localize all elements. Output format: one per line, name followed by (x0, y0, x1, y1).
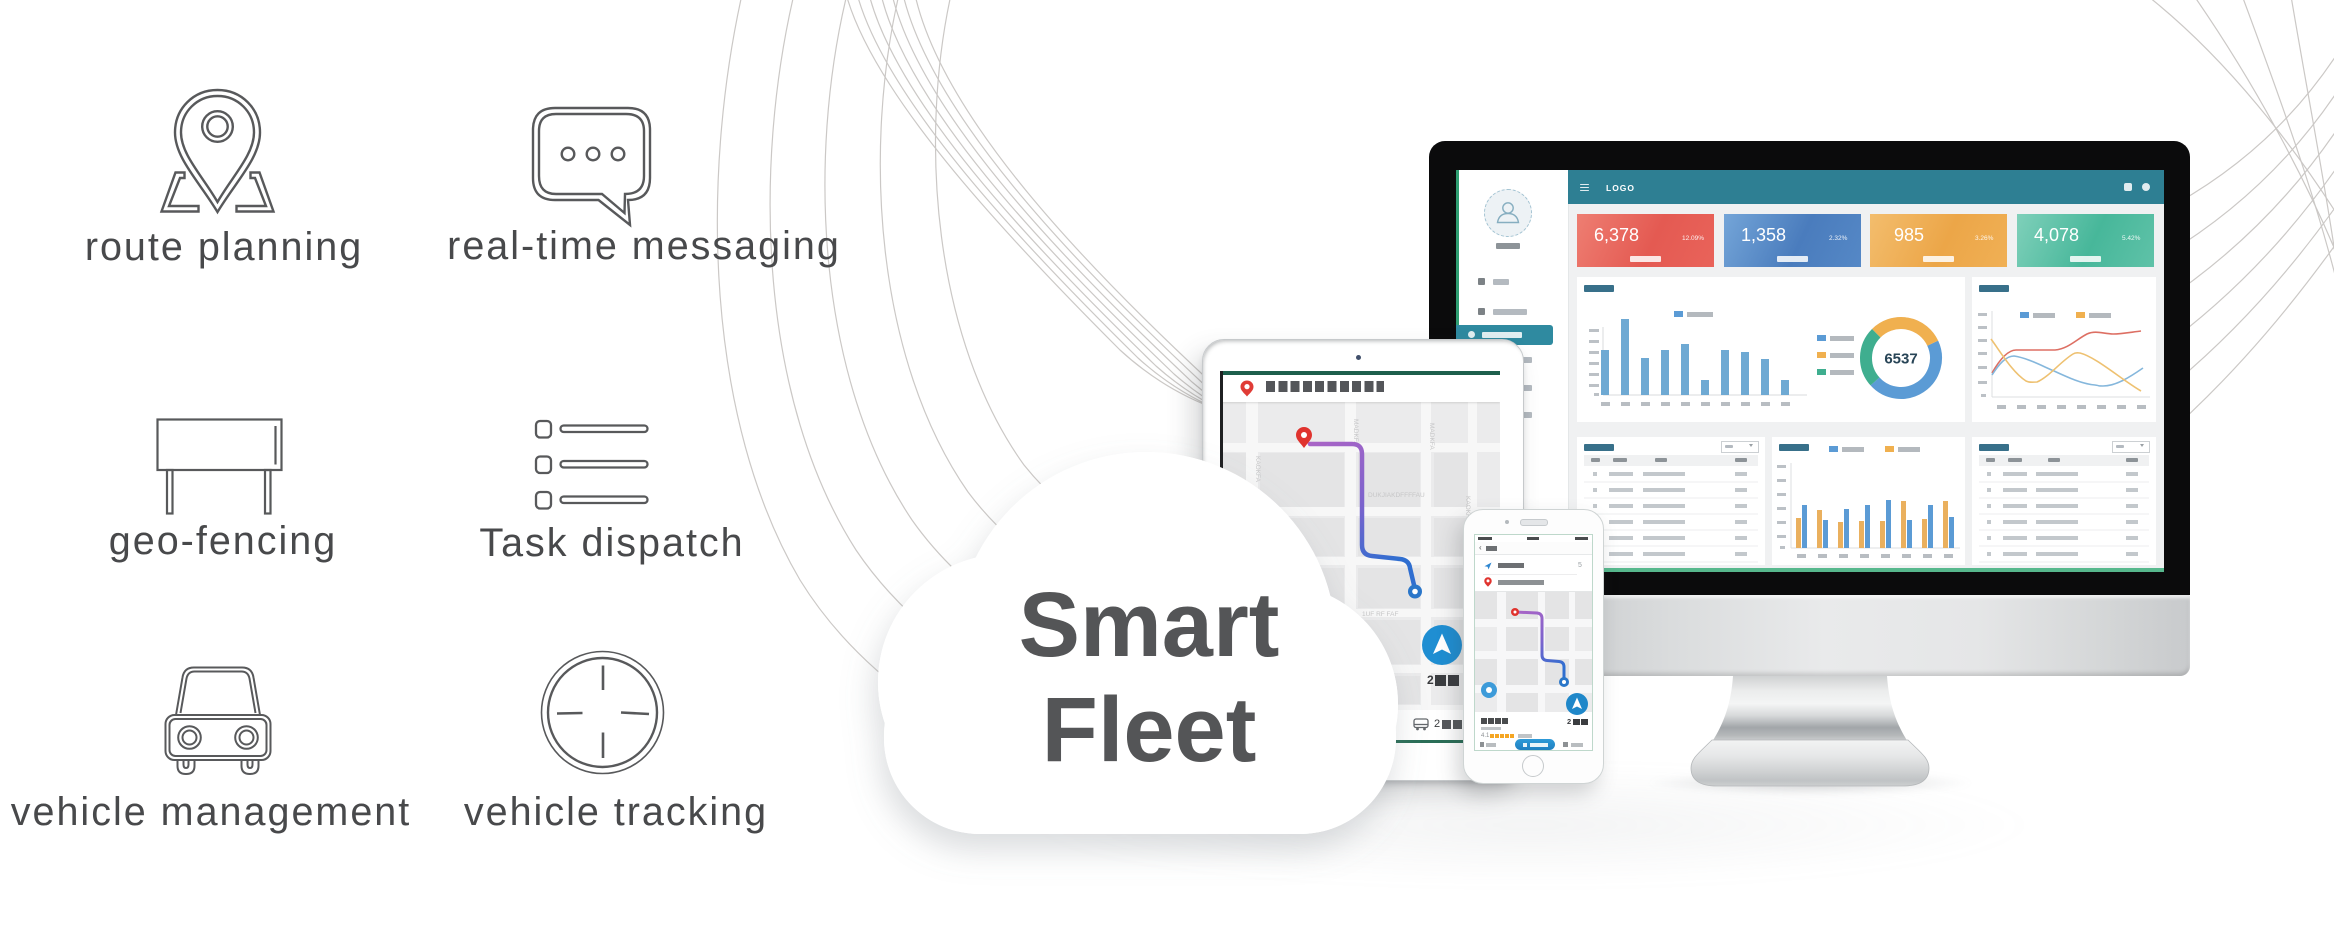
svg-text:Smart: Smart (1019, 574, 1280, 676)
svg-text:Fleet: Fleet (1042, 679, 1257, 781)
svg-text:6537: 6537 (1884, 351, 1917, 368)
